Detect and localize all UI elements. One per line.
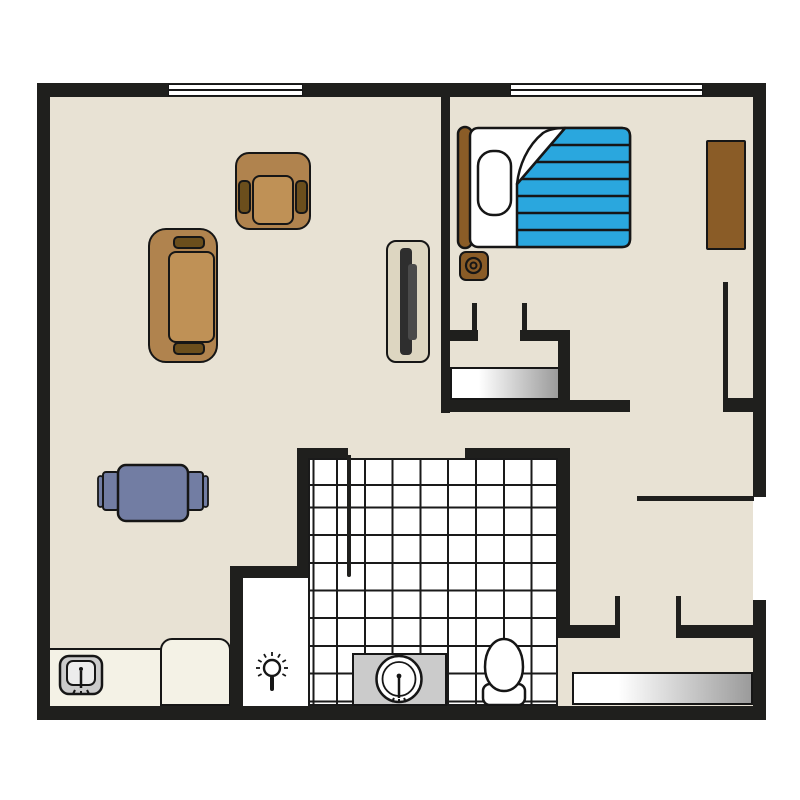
wall-left — [37, 83, 50, 720]
tv — [386, 240, 430, 363]
wall-right-upper — [753, 83, 766, 497]
window-pane-line — [511, 89, 702, 91]
wall-bedroom-divider — [441, 97, 450, 413]
dining-table — [118, 465, 188, 521]
wall-bath-left — [297, 448, 308, 577]
armchair-armrest-left — [238, 180, 251, 214]
wall-hall-bottom-left — [570, 625, 618, 638]
entry-mat — [572, 672, 753, 705]
wall-bottom — [37, 706, 766, 720]
closet-door-jamb-left — [472, 303, 477, 341]
wall-bath-top-right — [465, 448, 570, 458]
sofa-armrest-bottom — [173, 342, 205, 355]
window-living — [168, 84, 303, 96]
dining-chair-right-seat — [187, 472, 203, 510]
window-pane-line — [169, 89, 302, 91]
wall-bedroom-closet2-bottom — [723, 398, 766, 412]
vanity-sink-icon — [354, 655, 445, 704]
dining-set — [97, 463, 209, 523]
closet-door-jamb-right — [522, 303, 527, 341]
bedroom-closet-sliding-doors — [450, 367, 560, 400]
kitchen-sink-icon — [58, 654, 104, 698]
sofa-armrest-top — [173, 236, 205, 249]
bed-pillow — [478, 151, 511, 215]
shower-partition — [347, 455, 351, 577]
wall-hall-divider — [637, 496, 754, 501]
nightstand — [459, 251, 489, 281]
sofa-seat — [168, 251, 215, 343]
dining-chair-left-seat — [103, 472, 119, 510]
shower-head-icon — [254, 648, 290, 698]
hall-door-jamb-right — [676, 596, 681, 638]
wall-closet-side — [558, 333, 570, 412]
wall-bath-corner-v — [230, 566, 243, 706]
nightstand-spiral-icon — [461, 253, 486, 278]
dresser — [706, 140, 746, 250]
wall-hall-bottom-right — [680, 625, 766, 638]
wall-closet-front-right — [520, 330, 570, 341]
wall-right-lower — [753, 600, 766, 720]
kitchen-counter-end — [160, 638, 231, 706]
wall-bedroom-bottom — [441, 400, 630, 412]
bed — [455, 122, 635, 252]
armchair-seat — [252, 175, 294, 225]
sofa — [148, 228, 218, 363]
hall-door-jamb-left — [615, 596, 620, 638]
tv-screen-back — [408, 264, 417, 340]
toilet-icon — [478, 636, 530, 708]
window-bedroom — [510, 84, 703, 96]
armchair-armrest-right — [295, 180, 308, 214]
wall-bedroom-closet2-side — [723, 282, 728, 403]
floor-plan — [0, 0, 800, 800]
armchair — [235, 152, 311, 230]
vanity — [352, 653, 447, 706]
wall-bath-right — [558, 448, 570, 638]
